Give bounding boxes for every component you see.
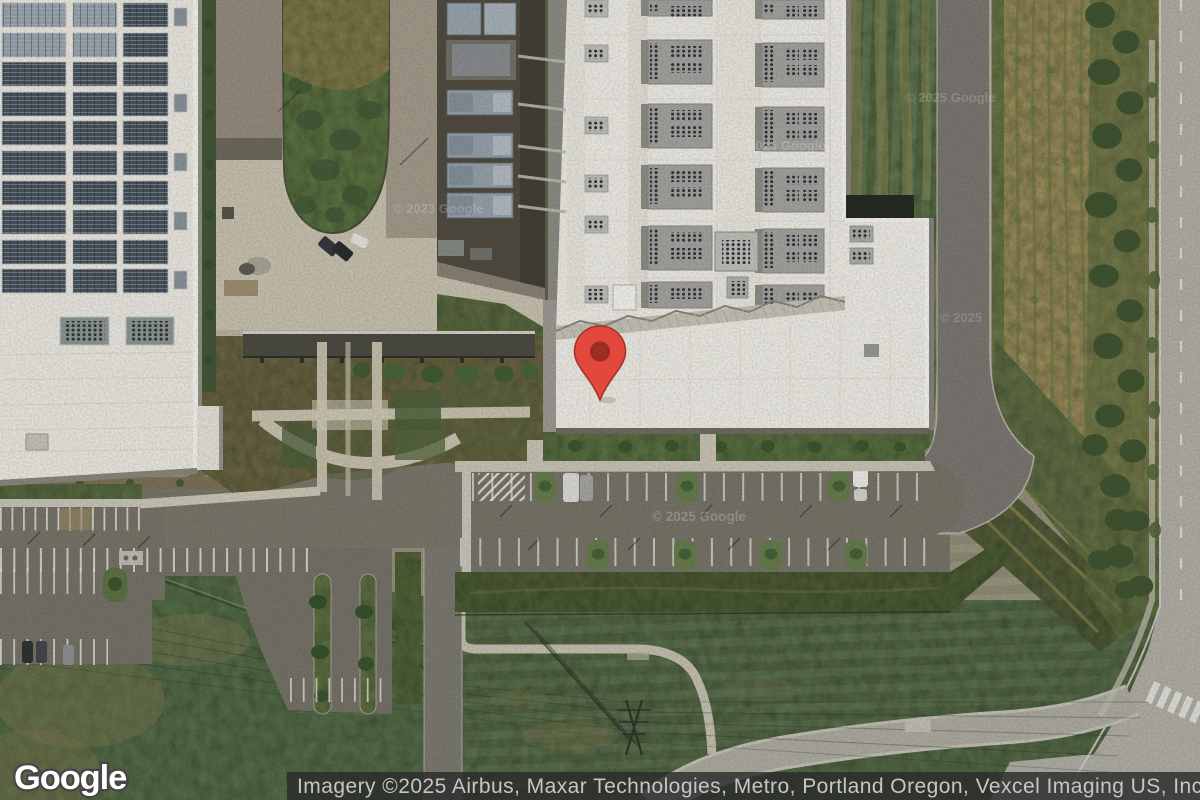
svg-text:Imagery ©2025 Airbus, Maxar Te: Imagery ©2025 Airbus, Maxar Technologies…: [297, 775, 1200, 798]
svg-text:Google: Google: [14, 759, 127, 797]
